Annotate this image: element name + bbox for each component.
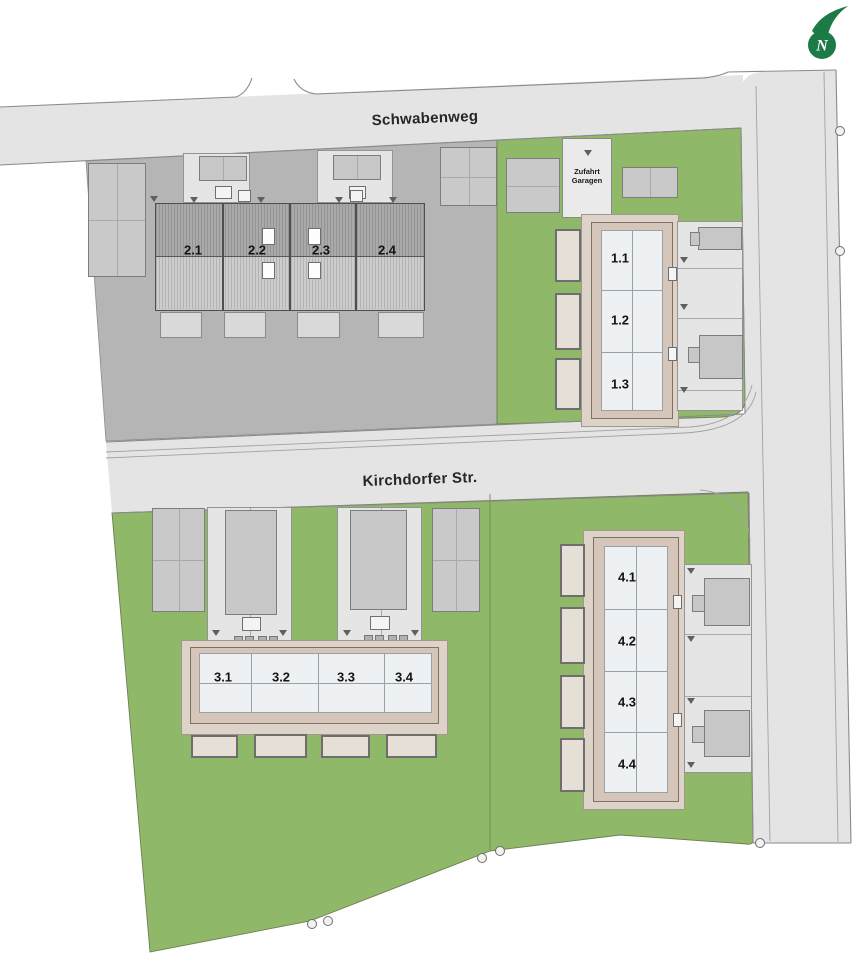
stall-divider bbox=[153, 560, 204, 561]
parking-lot-northeast bbox=[440, 147, 497, 206]
parked-cars-icon bbox=[333, 155, 381, 180]
entry-marker-icon bbox=[212, 630, 220, 636]
unit-party-wall bbox=[355, 204, 357, 310]
street-right-surface bbox=[739, 70, 851, 843]
garage-access-label-line1: Zufahrt bbox=[563, 167, 611, 176]
entry-marker-icon bbox=[680, 257, 688, 263]
survey-point bbox=[836, 247, 845, 256]
unit-party-wall bbox=[222, 204, 224, 310]
entry-marker-icon bbox=[687, 698, 695, 704]
unit-label-4-2: 4.2 bbox=[618, 634, 636, 649]
unit-label-2-2: 2.2 bbox=[248, 243, 266, 258]
car-icon bbox=[704, 578, 750, 626]
garage bbox=[386, 734, 437, 758]
parking-lot-northwest bbox=[88, 163, 146, 277]
north-compass-logo: N bbox=[800, 2, 856, 64]
car-cab-icon bbox=[690, 232, 700, 246]
entry-marker-icon bbox=[687, 568, 695, 574]
entry-porch-box bbox=[350, 190, 363, 202]
unit-divider bbox=[602, 352, 662, 353]
unit-label-1-2: 1.2 bbox=[611, 313, 629, 328]
entry-porch-box bbox=[673, 595, 682, 609]
parked-cars-icon bbox=[199, 156, 247, 181]
parking-lot-access-east bbox=[622, 167, 678, 198]
stall-divider bbox=[650, 168, 651, 197]
unit-label-2-4: 2.4 bbox=[378, 243, 396, 258]
unit-label-2-3: 2.3 bbox=[312, 243, 330, 258]
terrace bbox=[160, 312, 202, 338]
driveway-divider bbox=[685, 696, 751, 697]
unit-label-2-1: 2.1 bbox=[184, 243, 202, 258]
garage bbox=[555, 293, 581, 350]
garage bbox=[560, 675, 585, 729]
skylight bbox=[262, 262, 275, 279]
skylight bbox=[308, 262, 321, 279]
entry-marker-icon bbox=[343, 630, 351, 636]
entry-marker-icon bbox=[150, 196, 158, 202]
access-arrow-icon bbox=[584, 150, 592, 156]
car-cab-icon bbox=[688, 347, 700, 363]
compass-letter: N bbox=[815, 38, 829, 55]
car-icon bbox=[699, 335, 743, 379]
utility-box bbox=[242, 617, 261, 631]
parked-cars-icon bbox=[225, 510, 277, 615]
unit-divider bbox=[602, 290, 662, 291]
entry-marker-icon bbox=[680, 387, 688, 393]
garage bbox=[555, 358, 581, 410]
parked-cars-icon bbox=[350, 510, 407, 610]
unit-divider bbox=[605, 609, 667, 610]
garage-access-label-line2: Garagen bbox=[563, 176, 611, 185]
unit-label-3-3: 3.3 bbox=[337, 670, 355, 685]
stall-divider bbox=[357, 156, 358, 179]
parking-lot-access-west bbox=[506, 158, 560, 213]
terrace bbox=[224, 312, 266, 338]
garage bbox=[321, 735, 370, 758]
unit-divider bbox=[605, 671, 667, 672]
terrace bbox=[378, 312, 424, 338]
garage-access-lane: Zufahrt Garagen bbox=[562, 138, 612, 218]
terrace bbox=[297, 312, 340, 338]
survey-point bbox=[756, 839, 765, 848]
garage bbox=[254, 734, 307, 758]
entry-porch-box bbox=[668, 267, 677, 281]
site-plan: Schwabenweg Kirchdorfer Str. Zufahrt Gar… bbox=[0, 0, 863, 960]
survey-point bbox=[496, 847, 505, 856]
unit-label-4-4: 4.4 bbox=[618, 757, 636, 772]
entry-porch-box bbox=[673, 713, 682, 727]
utility-box bbox=[370, 616, 390, 630]
entry-marker-icon bbox=[687, 762, 695, 768]
stall-divider bbox=[433, 560, 479, 561]
entry-porch-box bbox=[238, 190, 251, 202]
survey-point bbox=[324, 917, 333, 926]
survey-point bbox=[836, 127, 845, 136]
entry-marker-icon bbox=[411, 630, 419, 636]
car-icon bbox=[698, 227, 742, 250]
driveway-divider bbox=[678, 268, 742, 269]
unit-label-3-1: 3.1 bbox=[214, 670, 232, 685]
unit-divider bbox=[605, 732, 667, 733]
car-cab-icon bbox=[692, 595, 705, 612]
unit-label-1-3: 1.3 bbox=[611, 377, 629, 392]
unit-party-wall bbox=[289, 204, 291, 310]
garage bbox=[555, 229, 581, 282]
entry-marker-icon bbox=[680, 304, 688, 310]
parking-lot-house3-west bbox=[152, 508, 205, 612]
garage bbox=[560, 607, 585, 664]
survey-point bbox=[478, 854, 487, 863]
unit-label-1-1: 1.1 bbox=[611, 251, 629, 266]
car-cab-icon bbox=[692, 726, 705, 743]
unit-label-4-3: 4.3 bbox=[618, 695, 636, 710]
driveway-divider bbox=[678, 318, 742, 319]
stall-divider bbox=[223, 157, 224, 180]
unit-label-4-1: 4.1 bbox=[618, 570, 636, 585]
entry-marker-icon bbox=[687, 636, 695, 642]
stall-divider bbox=[507, 186, 559, 187]
utility-box bbox=[215, 186, 232, 199]
garage bbox=[191, 735, 238, 758]
unit-label-3-2: 3.2 bbox=[272, 670, 290, 685]
stall-divider bbox=[441, 177, 496, 178]
unit-label-3-4: 3.4 bbox=[395, 670, 413, 685]
driveway-divider bbox=[685, 634, 751, 635]
garage bbox=[560, 738, 585, 792]
parking-lot-house3-east bbox=[432, 508, 480, 612]
ridge-line bbox=[636, 547, 637, 792]
leaf-icon bbox=[812, 6, 848, 36]
car-icon bbox=[704, 710, 750, 757]
entry-porch-box bbox=[668, 347, 677, 361]
stall-divider bbox=[89, 220, 145, 221]
entry-marker-icon bbox=[279, 630, 287, 636]
garage bbox=[560, 544, 585, 597]
survey-point bbox=[308, 920, 317, 929]
ridge-line bbox=[632, 231, 633, 410]
